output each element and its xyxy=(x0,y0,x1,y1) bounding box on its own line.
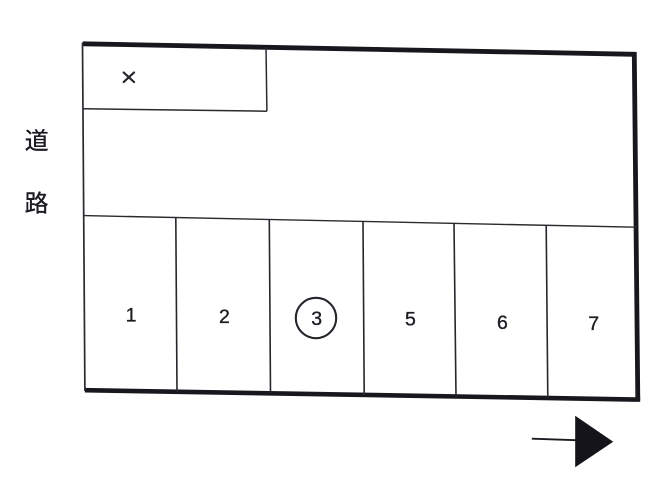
svg-text:6: 6 xyxy=(497,312,508,334)
svg-text:3: 3 xyxy=(311,308,322,330)
svg-text:1: 1 xyxy=(126,305,137,327)
svg-text:7: 7 xyxy=(588,313,599,335)
svg-text:5: 5 xyxy=(405,309,416,331)
svg-text:2: 2 xyxy=(219,306,230,328)
